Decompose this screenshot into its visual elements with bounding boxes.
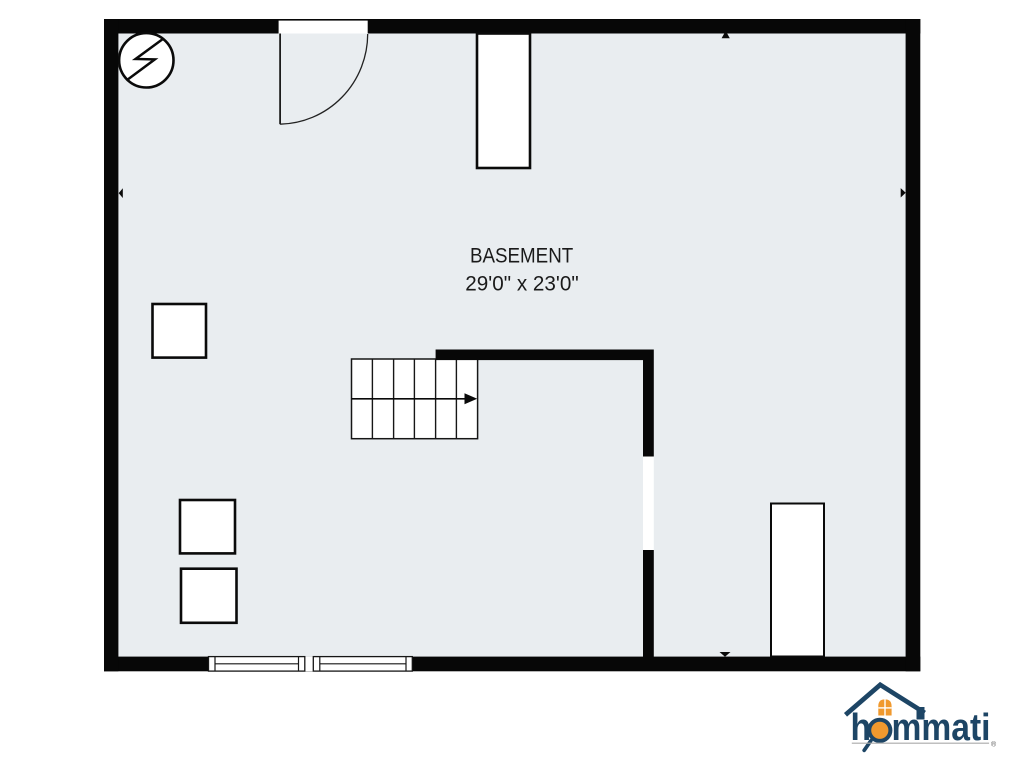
svg-text:®: ® [991,741,997,749]
svg-text:BASEMENT: BASEMENT [470,245,573,268]
svg-text:29'0" x 23'0": 29'0" x 23'0" [465,273,578,296]
